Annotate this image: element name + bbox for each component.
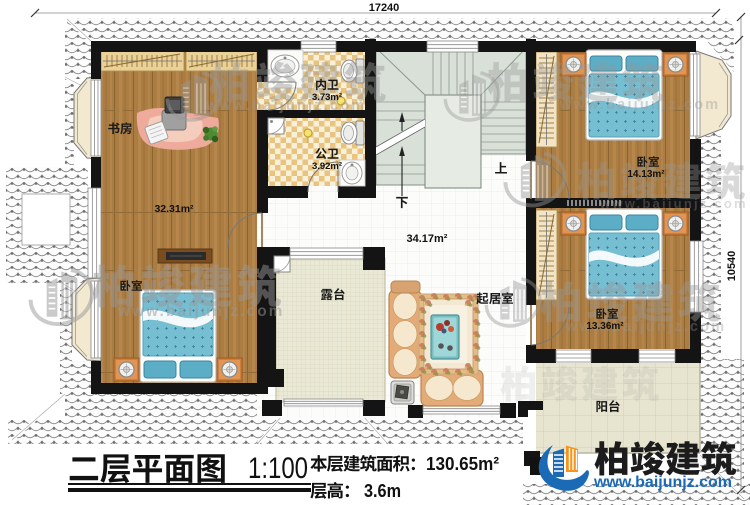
svg-text:32.31m²: 32.31m² [154,203,194,215]
svg-text:1:100: 1:100 [248,452,308,485]
svg-text:www.baijunjz.com: www.baijunjz.com [205,98,366,114]
svg-text:www.baijunjz.com: www.baijunjz.com [117,303,285,320]
svg-text:34.17m²: 34.17m² [407,233,448,245]
svg-text:3.73m²: 3.73m² [312,92,342,103]
svg-text:3.92m²: 3.92m² [312,161,342,172]
svg-text:www.baijunjz.com: www.baijunjz.com [559,97,720,113]
svg-text:17240: 17240 [369,2,400,14]
svg-text:3.6m: 3.6m [364,480,401,501]
svg-text:10540: 10540 [726,251,738,282]
svg-text:13.36m²: 13.36m² [586,321,624,332]
svg-text:www.baijunjz.com: www.baijunjz.com [593,474,732,491]
svg-text:14.13m²: 14.13m² [627,169,665,180]
svg-text:www.baijunjz.com: www.baijunjz.com [599,196,748,211]
svg-text:130.65m²: 130.65m² [426,453,499,474]
